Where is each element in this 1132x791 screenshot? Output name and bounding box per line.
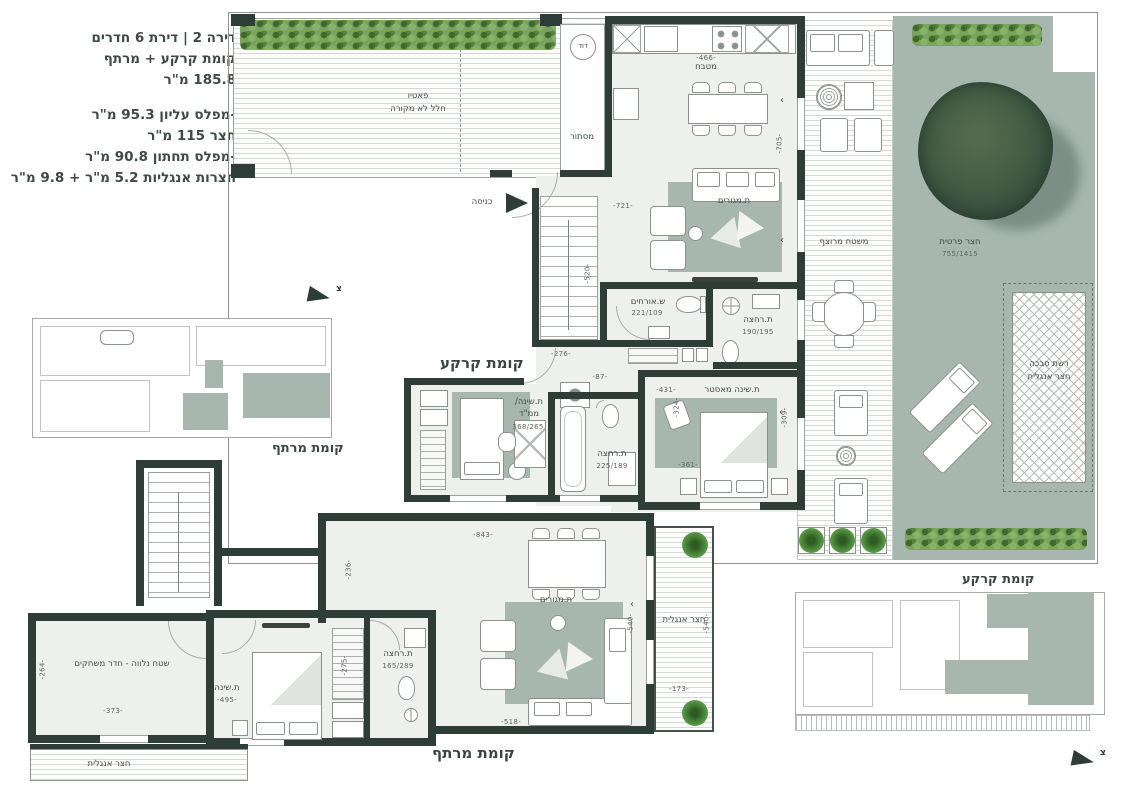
dining-chair [582,528,600,539]
toilet-icon [602,404,619,428]
car-icon [100,330,134,345]
plant-icon [861,528,886,553]
wall [706,289,713,347]
yard-area: חצר 115 מ"ר [8,126,236,147]
basement-living-label: ת.מגורים [530,596,582,605]
wall [404,495,645,502]
garden-hedge-bottom [905,528,1087,550]
garden-size: 755/1415 [932,251,988,258]
sofa-cushion [755,172,775,187]
deck-lounger-pillow [839,483,863,496]
round-table-chair [812,302,825,322]
living-dim: -721- [608,203,638,210]
patio-label: פאטיו [390,92,446,101]
window [450,495,506,502]
wall [318,513,654,521]
kitchen-label: מטבח [686,63,726,72]
window [646,640,654,684]
keyplan-inner-line [40,380,150,432]
trellis-label-1: רשת סבכה [1018,360,1080,369]
ground-plan-title: קומת קרקע [440,354,524,372]
window-chevron: › [779,408,783,418]
wall [607,282,797,289]
keyplan-highlight [183,393,228,430]
plant-icon [830,528,855,553]
dining-table [688,94,768,124]
gameroom-dim-373: -373- [96,708,130,715]
wall [548,392,555,502]
desk-chair-icon [498,432,516,452]
oven-unit-icon [644,26,678,52]
wall [28,613,214,621]
armchair-icon [650,206,686,236]
side-table-icon [550,615,566,631]
basement-dim-236: -236- [346,555,353,585]
round-table-icon [822,292,866,336]
court-left-label: חצר אנגלית [80,760,138,769]
keyplan-highlight [945,660,1029,694]
entry-arrow-icon [506,193,528,213]
wc-sink-icon [648,326,670,339]
shower-icon [722,297,740,315]
wall [548,392,640,399]
bed-pillow [736,480,764,493]
wall [605,24,612,176]
basement-bath-size: 165/289 [376,663,420,670]
dim-275: -275- [342,651,349,681]
wall [206,610,436,618]
master-dim-361: -361- [672,462,704,469]
gameroom-label: שטח נלווה - חדר משחקים [52,660,192,669]
bath1-sink-icon [752,294,780,309]
sofa-cushion [534,702,560,716]
floorplan-canvas: דירה 2 | דירת 6 חדרים קומת קרקע + מרתף 1… [0,0,1132,791]
kitchen-dim: -466- [686,55,726,62]
dining-table [528,540,606,588]
court-dim-173: -173- [664,686,694,693]
bath-sink-icon [404,628,426,648]
wall [318,513,326,623]
dining-chair [557,528,575,539]
keyplan-highlight [205,360,223,388]
bed-pillow [464,462,500,475]
basement-plan-title: קומת מרתף [432,744,515,762]
bath1-label: ת.רחצה [736,316,780,325]
trellis-grate [1012,292,1086,483]
spacer [8,91,236,105]
window [646,556,654,600]
mamad-size: 368/265 [506,424,550,431]
deck-chair-icon [854,118,882,152]
apartment-area: 185.8 מ"ר [8,70,236,91]
small-rug-icon [836,446,856,466]
window [700,502,760,510]
linen-closet [628,348,678,364]
coffee-table-icon [566,642,595,674]
window [797,300,805,340]
wall [231,14,255,26]
north-letter: צ [336,284,342,294]
sofa-cushion [838,34,863,52]
bath1-size: 190/195 [736,329,780,336]
wall [490,170,512,177]
blanket-fold [701,413,767,463]
side-table-icon [688,226,703,241]
english-courts-area: חצרות אנגליות 5.2 מ"ר + 9.8 מ"ר [8,168,236,189]
sofa-cushion [697,172,720,187]
stairs-dim: -520- [585,259,592,289]
kitchen-tall-cabinet [613,88,639,120]
wall [404,378,411,502]
dining-chair [744,125,762,136]
coffee-table-icon [737,211,766,243]
bed-pillow [256,722,285,735]
wall [214,548,324,556]
dining-chair [744,82,762,93]
wall [646,513,654,734]
wall [605,16,805,24]
wall [136,460,144,606]
sofa-cushion [609,628,626,652]
plant-icon [682,532,708,558]
window [560,495,600,502]
wall [428,618,436,742]
garden-label: חצר פרטית [930,238,990,247]
blanket-fold [253,653,321,705]
stair-rail [178,492,179,592]
dining-chair [718,125,736,136]
keyplan-street-hatch [795,715,1090,731]
master-depth-dim: -324- [674,393,681,423]
dresser-icon [332,702,364,719]
keyplan-inner-line [803,600,893,648]
apartment-floors: קומת קרקע + מרתף [8,49,236,70]
shower-drain-icon [404,708,418,722]
apartment-title: דירה 2 | דירת 6 חדרים [8,28,236,49]
wall [713,362,797,369]
round-table-chair [863,302,876,322]
dining-dim: -705- [777,129,784,159]
screen-label: מסתור [558,133,606,142]
wall [428,726,654,734]
basement-staircase [148,472,210,598]
bed-pillow [704,480,732,493]
nightstand-icon [771,478,788,495]
armchair-icon [480,620,516,652]
deck-lounger-pillow [839,395,863,408]
side-table-icon [844,82,874,110]
upper-level-area: -מפלס עליון 95.3 מ"ר [8,105,236,126]
deck-chair-icon [820,118,848,152]
washer-dryer-icon [696,348,708,362]
sofa-cushion [810,34,835,52]
bed-pillow [289,722,318,735]
keyplan-highlight [987,594,1029,628]
bathtub-inner [564,411,582,487]
basement-dim-540: -540- [628,609,635,639]
hall-dim-87: -87- [588,374,612,381]
wall [532,340,607,347]
bunk-icon [420,390,448,407]
dresser-icon [332,721,364,738]
north-letter: צ [1100,748,1106,758]
master-label: ת.שינה מאסטר [696,386,768,395]
mamad-label-2: ממ"ד [512,410,546,419]
wall [560,170,612,177]
keyplan-ground-title: קומת קרקע [962,572,1034,587]
wall [607,340,713,347]
stove-icon [712,26,742,52]
window [797,200,805,252]
patio-sublabel: חלל לא מקורה [380,105,456,114]
dining-chair [532,528,550,539]
wall [638,370,798,377]
window-chevron: › [780,96,784,106]
bath2-label: ת.רחצה [590,450,634,459]
english-court-left [30,749,248,781]
wall [532,188,539,346]
wall [540,14,562,26]
toilet-icon [398,676,415,700]
armchair-icon [480,658,516,690]
plant-icon [682,700,708,726]
boiler-label: דוד [572,43,594,50]
tv-icon [262,623,310,628]
nightstand-icon [232,720,248,736]
wall [136,460,222,468]
wall [206,610,214,746]
living-label: ת.מגורים [708,197,760,206]
round-table-chair [834,335,854,348]
deck-label: משטח מרוצף [808,238,880,247]
sofa-cushion [726,172,749,187]
bath2-size: 225/189 [590,463,634,470]
wall [404,378,524,385]
keyplan-basement-title: קומת מרתף [272,441,344,456]
round-rattan-icon [816,84,842,110]
nightstand-icon [680,478,697,495]
toilet-icon [676,296,702,313]
basement-bath-label: ת.רחצה [376,650,420,659]
basement-bedroom-label: ת.שינה [206,684,248,693]
basement-dim-843: -843- [466,532,500,539]
sofa-cushion [566,702,592,716]
dining-chair [718,82,736,93]
keyplan-inner-line [803,652,873,707]
entry-label: כניסה [462,198,502,207]
washer-dryer-icon [682,348,694,362]
outdoor-chair-icon [874,30,894,66]
court-dim-540: -540- [704,609,711,639]
project-info: דירה 2 | דירת 6 חדרים קומת קרקע + מרתף 1… [8,28,236,188]
basement-dim-518: -518- [494,719,528,726]
plant-icon [799,528,824,553]
upper-cabinet-x [613,25,641,53]
round-table-chair [834,280,854,293]
patio-hedge [240,20,556,50]
dining-chair [692,125,710,136]
mamad-label-1: ת.שינה/ [508,398,550,407]
window-chevron: › [780,236,784,246]
dining-chair [582,589,600,600]
mamad-closet [420,430,446,490]
window [100,735,148,743]
window [797,418,805,470]
north-arrow-icon [1071,750,1096,770]
wall [28,613,36,743]
wall [600,282,607,346]
trellis-label-2: חצר אנגלית [1018,373,1080,382]
garden-hedge-top [912,24,1042,46]
window-chevron: › [630,600,634,610]
bedroom-dim-495: -495- [210,697,244,704]
armchair-icon [650,240,686,270]
window [797,98,805,150]
stair-rail [568,220,569,330]
bunk-icon [420,409,448,426]
toilet-icon [722,340,739,364]
dining-chair [692,82,710,93]
keyplan-highlight [243,373,330,418]
keyplan-highlight [1028,592,1094,705]
lower-level-area: -מפלס תחתון 90.8 מ"ר [8,147,236,168]
wall [214,460,222,606]
gameroom-dim-264: -264- [40,655,47,685]
upper-cabinet-x [745,25,789,53]
